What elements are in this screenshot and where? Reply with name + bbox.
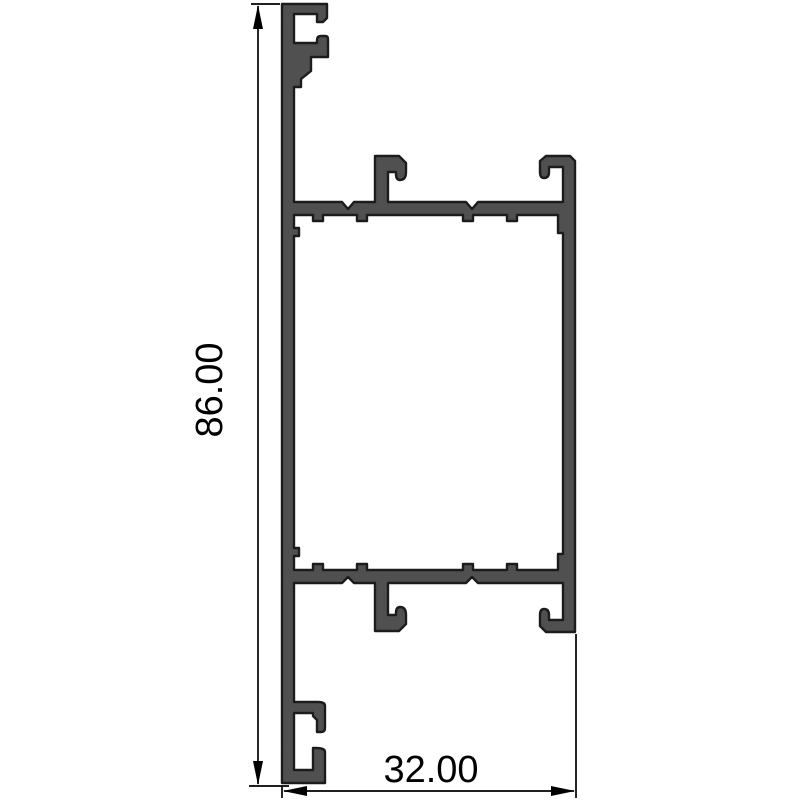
profile-technical-drawing: 86.00 32.00 bbox=[0, 0, 800, 800]
drawing-background bbox=[0, 0, 800, 800]
width-dimension-label: 32.00 bbox=[383, 749, 478, 791]
drawing-canvas: 86.00 32.00 bbox=[0, 0, 800, 800]
height-dimension-label: 86.00 bbox=[189, 342, 231, 437]
